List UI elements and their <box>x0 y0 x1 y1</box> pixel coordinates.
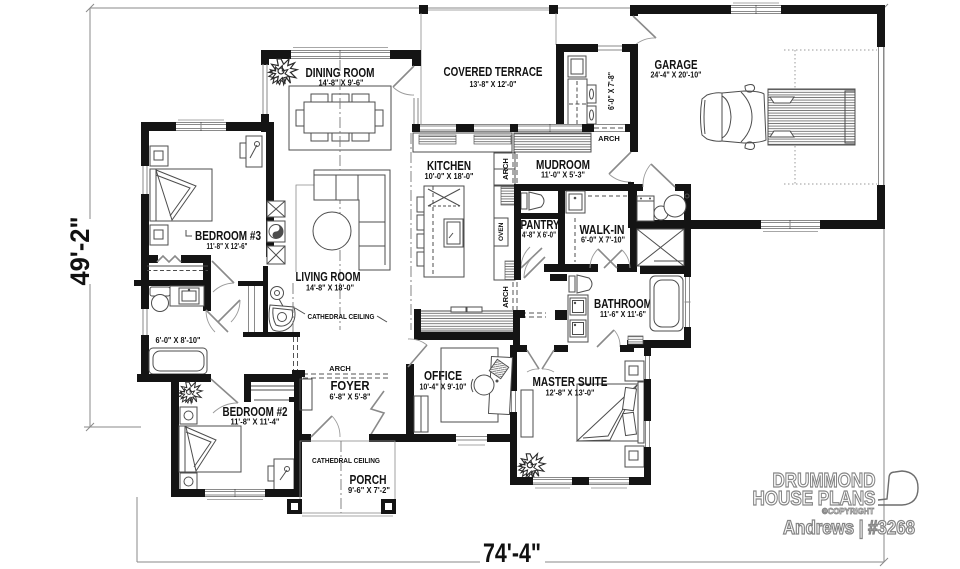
svg-text:11'-6" X 11'-6": 11'-6" X 11'-6" <box>600 309 646 319</box>
svg-text:49'-2": 49'-2" <box>65 217 95 286</box>
svg-text:14'-8" X 9'-6": 14'-8" X 9'-6" <box>319 78 364 88</box>
svg-text:11'-8" X 12'-6": 11'-8" X 12'-6" <box>207 241 248 251</box>
svg-text:ARCH: ARCH <box>598 134 620 143</box>
svg-text:ARCH: ARCH <box>501 158 510 180</box>
svg-text:9'-6" X 7'-2": 9'-6" X 7'-2" <box>348 485 390 495</box>
svg-text:ARCH: ARCH <box>501 286 510 308</box>
svg-text:12'-8" X 13'-0": 12'-8" X 13'-0" <box>546 388 595 398</box>
svg-text:4'-8" X 6'-0": 4'-8" X 6'-0" <box>522 230 556 240</box>
svg-text:6'-0" X 7'-8": 6'-0" X 7'-8" <box>606 72 616 110</box>
svg-text:11'-0" X 5'-3": 11'-0" X 5'-3" <box>541 170 585 180</box>
svg-text:74'-4": 74'-4" <box>483 538 541 568</box>
svg-text:ARCH: ARCH <box>329 364 351 373</box>
svg-text:CATHEDRAL CEILING: CATHEDRAL CEILING <box>312 456 380 465</box>
svg-text:©COPYRIGHT: ©COPYRIGHT <box>822 506 875 516</box>
svg-text:OVEN: OVEN <box>498 222 505 241</box>
svg-text:11'-8" X 11'-4": 11'-8" X 11'-4" <box>231 417 280 427</box>
svg-text:6'-0" X 8'-10": 6'-0" X 8'-10" <box>156 335 201 345</box>
svg-text:6'-0" X 7'-10": 6'-0" X 7'-10" <box>581 235 625 245</box>
svg-text:COVERED TERRACE: COVERED TERRACE <box>444 65 543 79</box>
svg-text:6'-8" X 5'-8": 6'-8" X 5'-8" <box>330 392 371 402</box>
svg-text:10'-0" X 18'-0": 10'-0" X 18'-0" <box>425 171 474 181</box>
svg-text:24'-4" X 20'-10": 24'-4" X 20'-10" <box>651 70 702 80</box>
svg-text:10'-4" X 9'-10": 10'-4" X 9'-10" <box>420 382 467 392</box>
svg-text:Andrews | #3268: Andrews | #3268 <box>783 518 915 539</box>
svg-text:14'-8" X 18'-0": 14'-8" X 18'-0" <box>306 283 354 293</box>
svg-text:CATHEDRAL CEILING: CATHEDRAL CEILING <box>308 312 375 321</box>
svg-text:13'-8" X 12'-0": 13'-8" X 12'-0" <box>470 79 517 89</box>
